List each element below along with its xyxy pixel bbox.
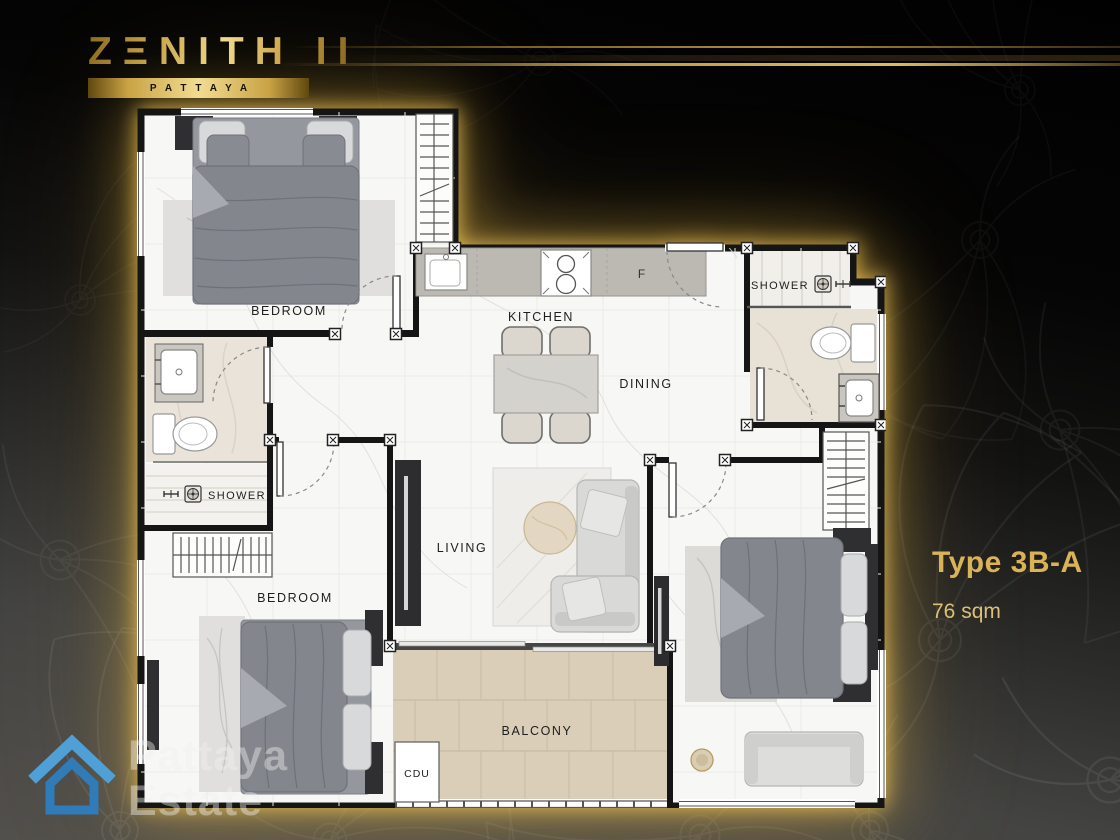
- kitchen-counter: F: [416, 248, 706, 296]
- toilet-icon: [153, 414, 217, 454]
- unit-area-label: 76 sqm: [932, 600, 1083, 624]
- dining-table: [494, 355, 598, 413]
- double-bed: [241, 610, 383, 794]
- brand-subtitle: PATTAYA: [141, 83, 256, 94]
- brand-logo: ZΞNITH II PATTAYA: [88, 30, 359, 98]
- coffee-table: [524, 502, 576, 554]
- double-bed: [193, 118, 359, 304]
- double-bed: [721, 528, 878, 702]
- label-bedroom2: BEDROOM: [257, 591, 333, 605]
- cdu-unit: CDU: [395, 742, 439, 802]
- brand-bar: PATTAYA: [88, 78, 309, 98]
- label-dining: DINING: [619, 377, 672, 391]
- shower-head-icon: [815, 276, 831, 292]
- sink-icon: [425, 254, 467, 290]
- label-shower-left: SHOWER: [208, 490, 266, 502]
- wardrobe: [416, 114, 453, 242]
- shower-head-icon: [185, 486, 201, 502]
- unit-type-label: Type 3B-A: [932, 546, 1083, 580]
- fridge-label: F: [638, 267, 646, 281]
- label-living: LIVING: [437, 541, 488, 555]
- rug: [199, 616, 245, 792]
- toilet-icon: [811, 324, 875, 362]
- bench-sofa: [745, 732, 863, 786]
- brochure-page: ZΞNITH II PATTAYA Type 3B-A 76 sqm: [0, 0, 1120, 840]
- floorplan: F: [137, 108, 886, 813]
- label-bedroom1: BEDROOM: [251, 304, 327, 318]
- label-balcony: BALCONY: [502, 724, 573, 738]
- sink-icon: [155, 344, 203, 402]
- console: [147, 660, 159, 750]
- label-cdu: CDU: [404, 768, 430, 780]
- floorplan-svg: F: [137, 108, 886, 808]
- unit-info: Type 3B-A 76 sqm: [932, 546, 1083, 624]
- house-logo-icon: [26, 730, 118, 825]
- wardrobe: [173, 533, 272, 577]
- label-shower-right: SHOWER: [751, 280, 809, 292]
- sliding-door: [395, 642, 662, 652]
- side-stool: [691, 749, 713, 771]
- wardrobe-right: [823, 432, 869, 530]
- label-kitchen: KITCHEN: [508, 310, 574, 324]
- sink-icon: [839, 374, 879, 422]
- brand-name: ZΞNITH II: [88, 30, 359, 74]
- stove-icon: [541, 250, 591, 296]
